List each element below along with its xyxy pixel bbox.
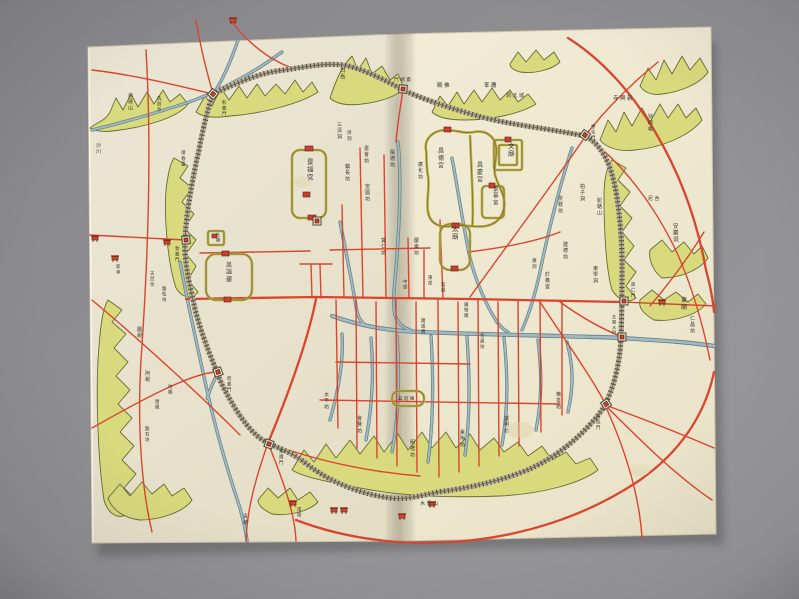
- photo-vignette: [0, 0, 799, 599]
- photograph-of-old-map: 景福宮昌德宮昌慶宮景慕宮文廟太廟慶熙宮社稷三清洞白岳濟洞嘉會坊陽德坊鎮長坊安國坊…: [0, 0, 799, 599]
- map-photograph: 景福宮昌德宮昌慶宮景慕宮文廟太廟慶熙宮社稷三清洞白岳濟洞嘉會坊陽德坊鎮長坊安國坊…: [0, 0, 799, 599]
